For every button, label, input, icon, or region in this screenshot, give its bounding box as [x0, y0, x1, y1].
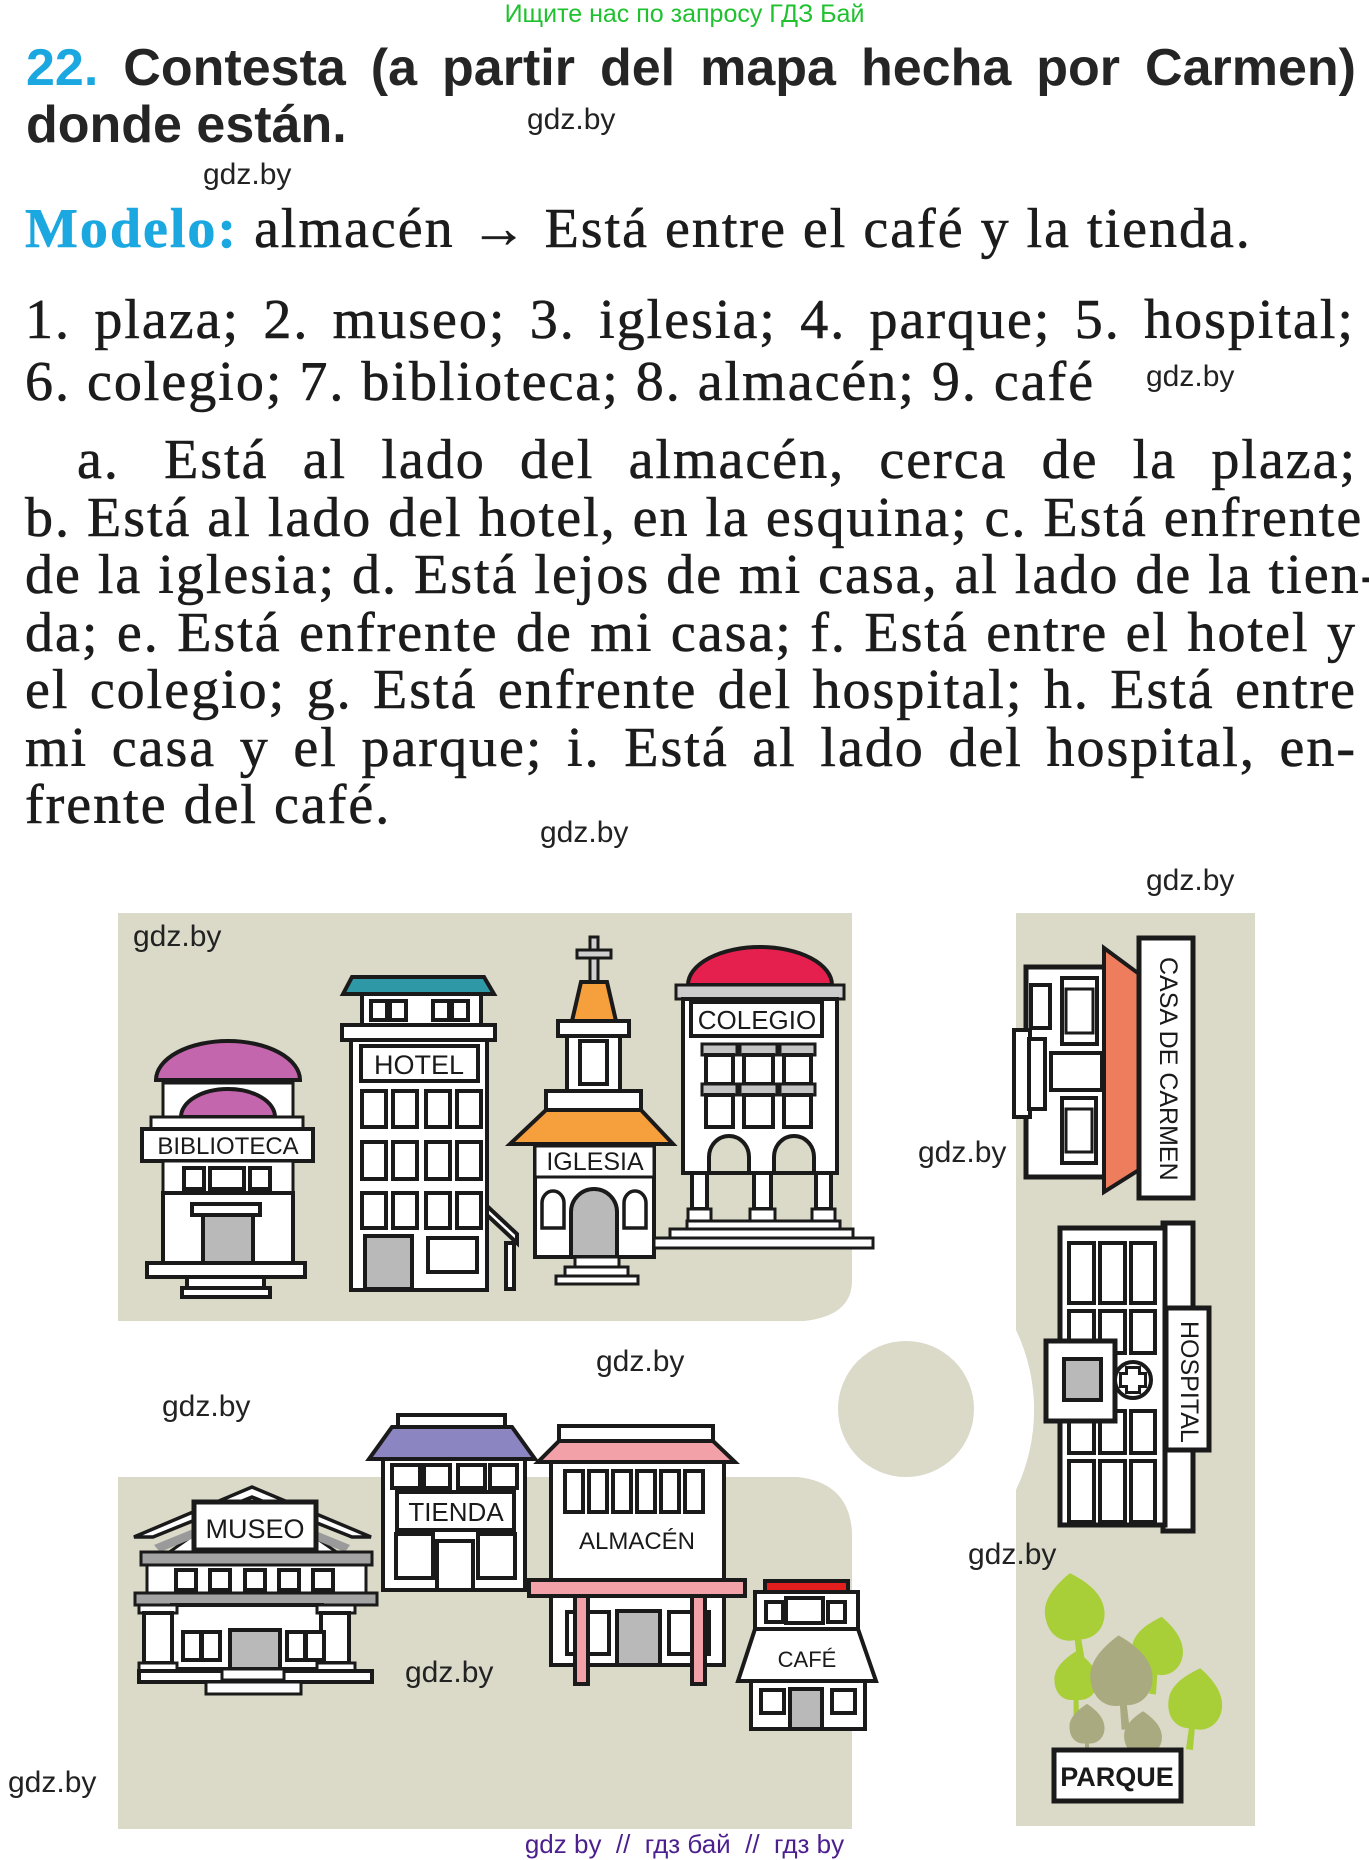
svg-text:HOTEL: HOTEL	[374, 1050, 464, 1080]
svg-text:ALMACÉN: ALMACÉN	[579, 1528, 695, 1555]
svg-text:CAFÉ: CAFÉ	[778, 1647, 837, 1672]
svg-text:CASA DE CARMEN: CASA DE CARMEN	[1154, 957, 1182, 1181]
svg-text:IGLESIA: IGLESIA	[546, 1148, 644, 1176]
svg-text:HOSPITAL: HOSPITAL	[1175, 1321, 1203, 1443]
svg-text:COLEGIO: COLEGIO	[698, 1005, 816, 1035]
svg-text:BIBLIOTECA: BIBLIOTECA	[157, 1133, 298, 1160]
svg-text:PARQUE: PARQUE	[1060, 1762, 1174, 1792]
svg-text:TIENDA: TIENDA	[408, 1497, 504, 1527]
svg-text:MUSEO: MUSEO	[205, 1514, 304, 1544]
